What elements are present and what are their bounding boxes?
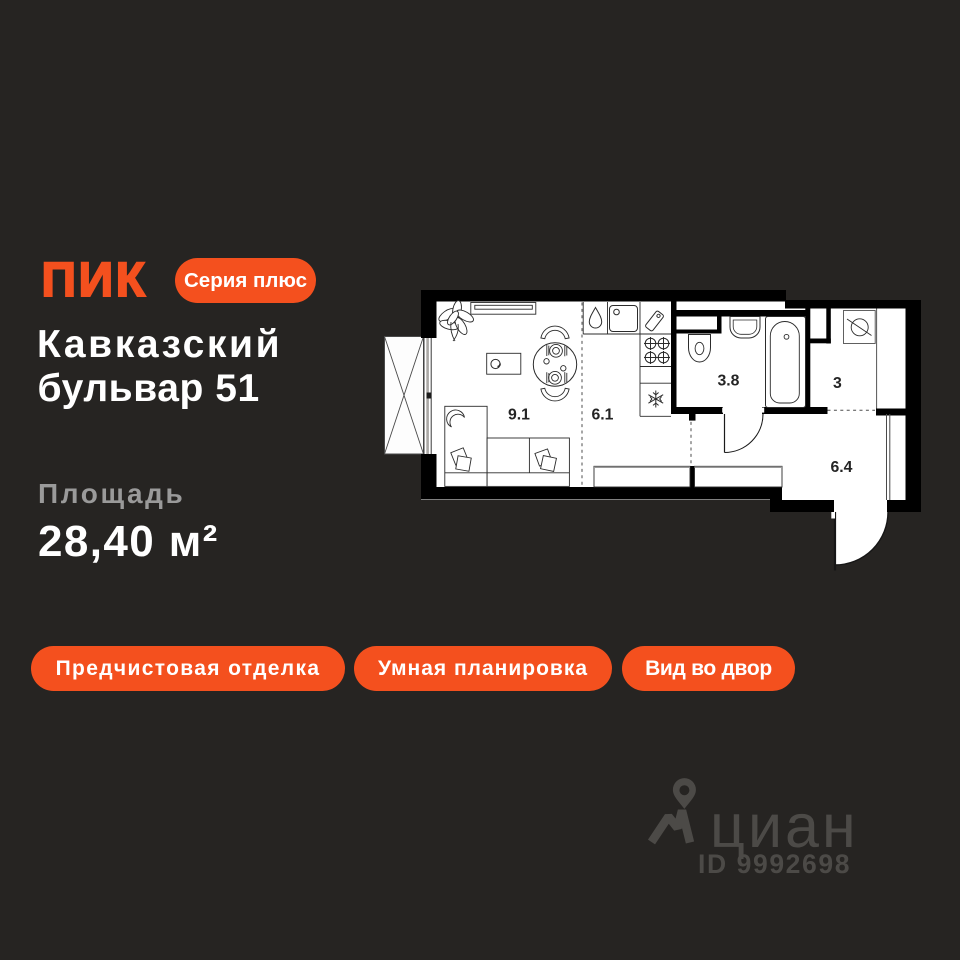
svg-text:3: 3: [833, 375, 842, 392]
svg-text:6.1: 6.1: [592, 407, 614, 424]
svg-text:9.1: 9.1: [508, 407, 530, 424]
svg-text:6.4: 6.4: [831, 459, 853, 476]
svg-text:3.8: 3.8: [718, 372, 740, 389]
